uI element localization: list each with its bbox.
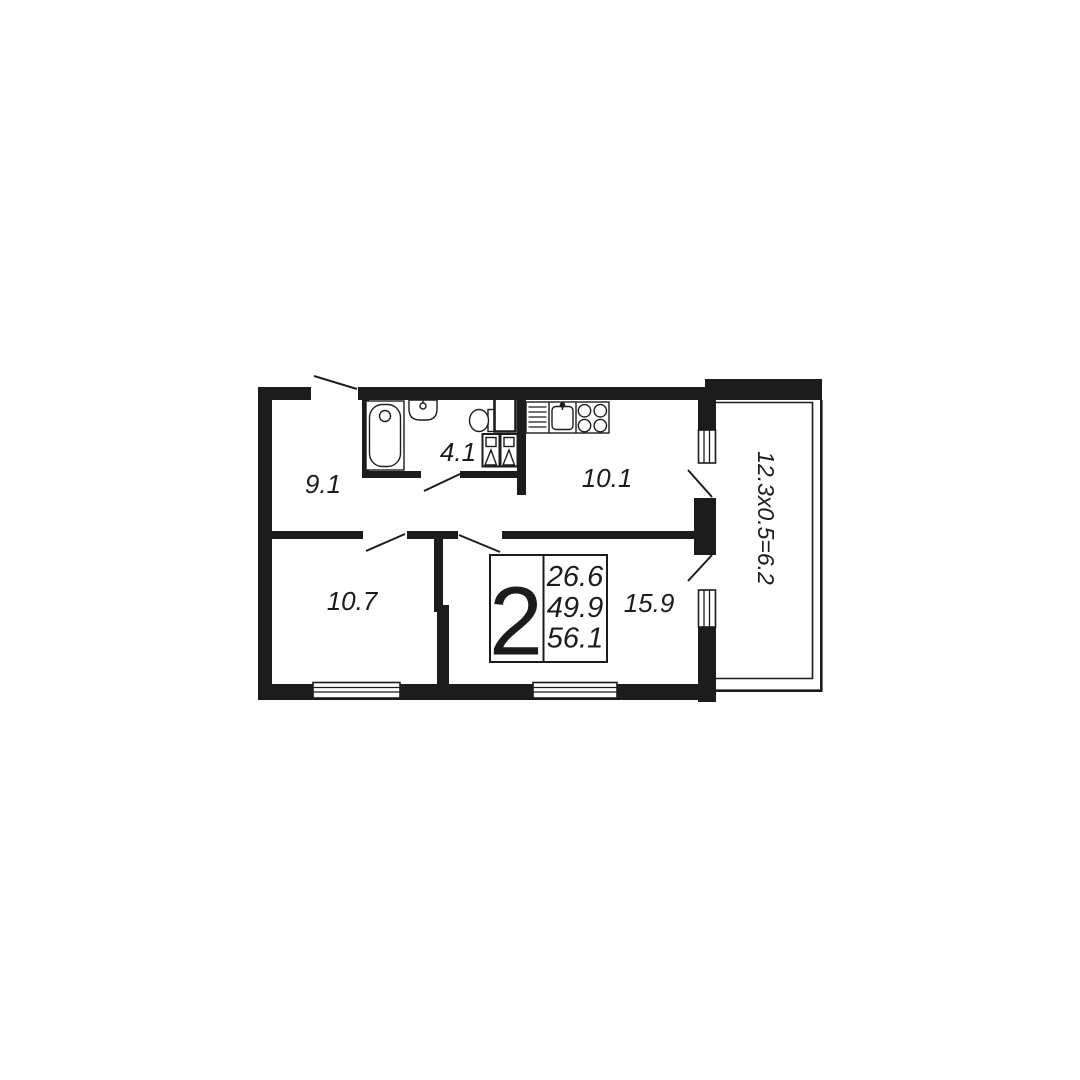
living-area-value: 26.6 [546,561,604,593]
bathtub-symbol [366,401,404,470]
toilet-symbol [470,410,497,432]
total-area-value: 56.1 [547,623,603,655]
wall-bedroom-divider-lower [437,605,449,688]
kitchen-fixtures [526,402,609,433]
balcony-dimension-label: 12.3x0.5=6.2 [753,451,779,585]
cabinet-right-symbol [501,434,518,467]
room-label-living-room: 15.9 [624,588,675,618]
room-label-bedroom: 10.7 [327,586,379,616]
wall-balcony-door-pier [694,498,716,555]
wall-wc-bottom [460,471,526,478]
wall-left [258,387,272,700]
room-label-kitchen: 10.1 [582,463,633,493]
floor-plan-canvas: 2 26.6 49.9 56.1 9.1 4.1 10.1 10.7 15.9 … [0,0,1080,1080]
door-swing-bedroom [366,534,405,551]
wall-bathroom-bottom [362,471,421,478]
wall-mid-center [407,531,458,539]
door-swing-entrance [314,376,357,389]
door-swing-living-room [459,535,500,552]
wall-balcony-top [705,379,822,400]
floor-plan: 2 26.6 49.9 56.1 9.1 4.1 10.1 10.7 15.9 … [0,0,1080,1080]
wall-top-main [358,387,705,400]
wall-mid-right [502,531,698,539]
room-label-hallway: 9.1 [305,469,341,499]
info-box: 2 26.6 49.9 56.1 [489,555,607,676]
washbasin-symbol [409,400,437,420]
window-kitchen [699,430,716,463]
window-bedroom [313,683,400,699]
window-living-right [699,590,716,627]
cabinet-left-symbol [483,434,500,467]
door-swing-bathroom [424,474,460,491]
wall-mid-left [272,531,363,539]
usable-area-value: 49.9 [547,592,603,624]
wall-bedroom-divider-upper [434,531,443,612]
ventilation-shaft-symbol [495,400,516,432]
window-living-room [533,683,617,699]
room-count-label: 2 [489,567,543,676]
room-label-bathroom: 4.1 [440,437,476,467]
